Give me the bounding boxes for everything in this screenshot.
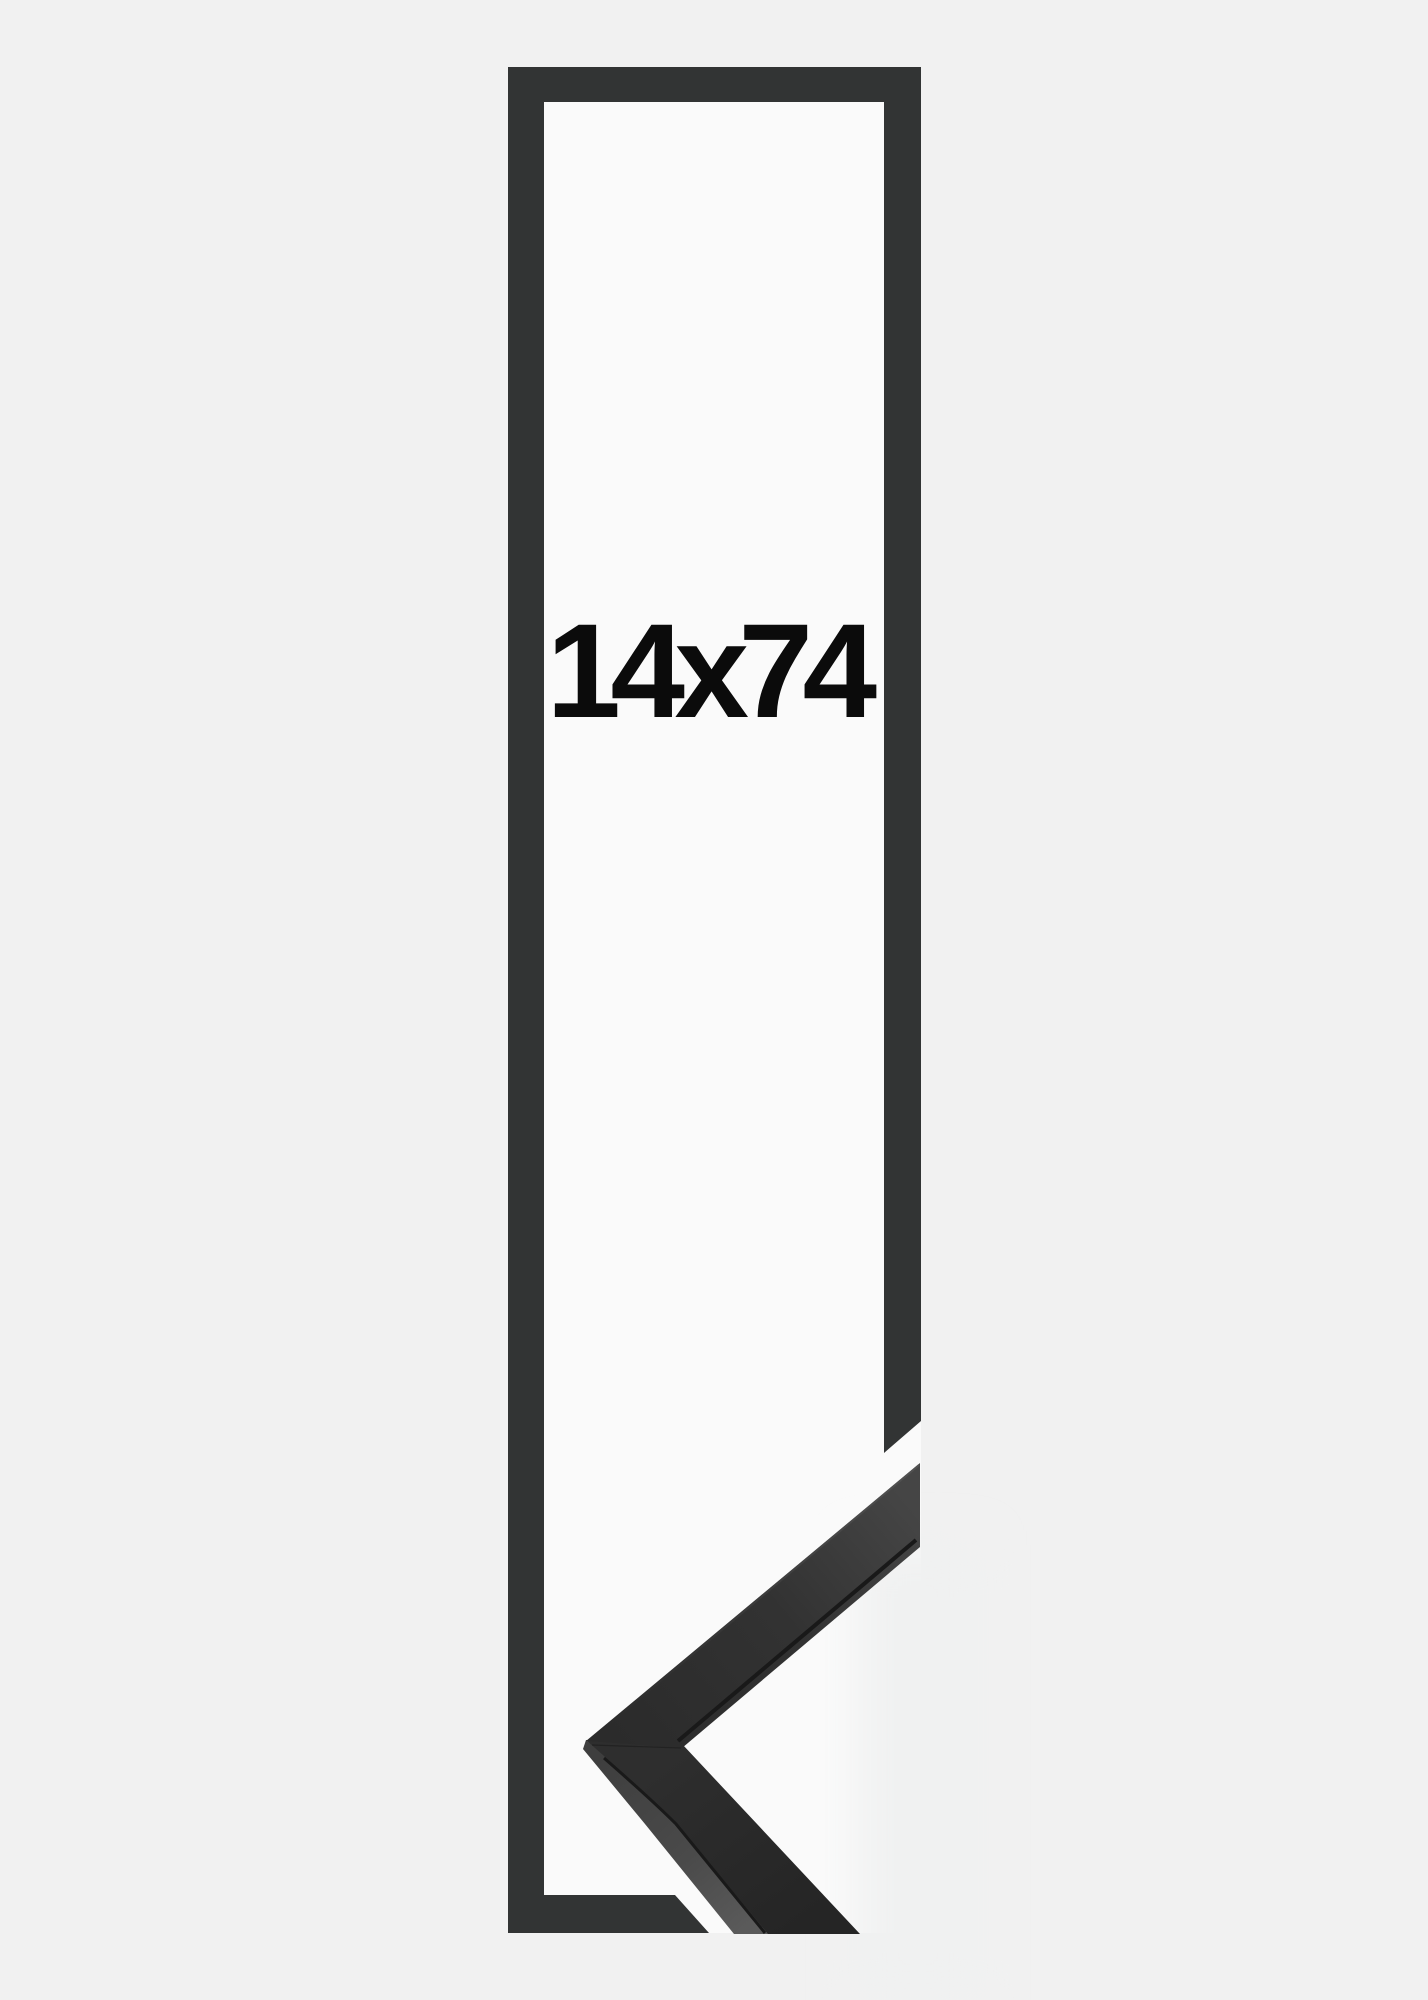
- svg-text:14x74: 14x74: [546, 597, 876, 746]
